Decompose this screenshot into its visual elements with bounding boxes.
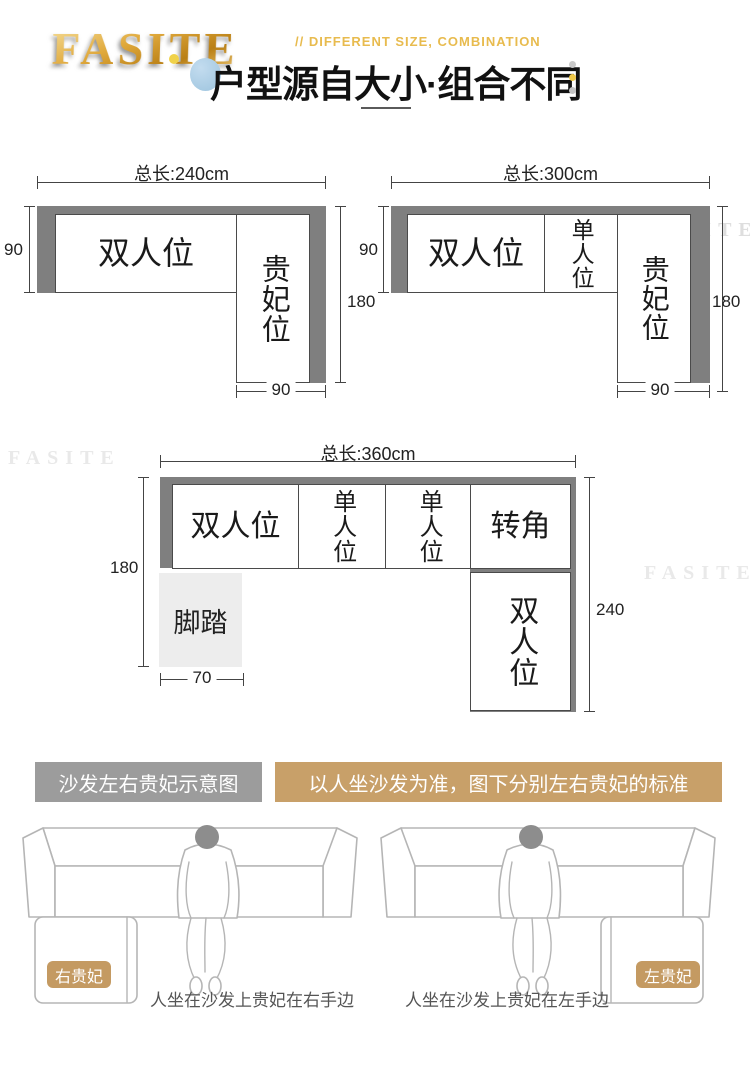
decor-dot-gray-top <box>569 61 576 68</box>
diagram3-seat-corner: 转角 <box>470 484 571 569</box>
diagram2-bottom-dim-value: 90 <box>646 380 675 400</box>
diagram3-seat-double: 双人位 <box>172 484 299 569</box>
diagram1-bottom-dim-value: 90 <box>267 380 296 400</box>
page-title: 户型源自大小·组合不同 <box>210 54 555 108</box>
diagram2-right-dim-value: 180 <box>712 292 740 312</box>
right-chaise-badge: 右贵妃 <box>47 961 111 988</box>
diagram1-seat-double: 双人位 <box>55 214 237 293</box>
decor-yellow-dot <box>169 54 179 64</box>
watermark-fasite: FASITE <box>644 562 750 585</box>
diagram1-left-dimension-line <box>29 206 30 293</box>
diagram2-seat-single: 单人位 <box>544 214 618 293</box>
diagram2-left-dim-value: 90 <box>359 240 378 260</box>
diagram3-right-dim-value: 240 <box>596 600 624 620</box>
legend-title-badge: 沙发左右贵妃示意图 <box>35 762 262 802</box>
diagram3-seat-single-1: 单人位 <box>298 484 386 569</box>
diagram3-footstool: 脚踏 <box>159 573 242 667</box>
diagram2-seat-chaise: 贵妃位 <box>617 214 691 383</box>
diagram3-total-length-label: 总长:360cm <box>160 440 576 466</box>
diagram1-left-dim-value: 90 <box>4 240 23 260</box>
legend-description: 以人坐沙发为准，图下分别左右贵妃的标准 <box>275 762 722 802</box>
watermark-fasite: FASITE <box>8 447 121 470</box>
left-chaise-caption: 人坐在沙发上贵妃在左手边 <box>401 986 613 1011</box>
decor-dot-gold <box>569 74 576 81</box>
diagram1-seat-chaise: 贵妃位 <box>236 214 310 383</box>
person-figure <box>177 825 239 995</box>
diagram2-top-dimension-line <box>391 182 710 183</box>
left-chaise-badge: 左贵妃 <box>636 961 700 988</box>
diagram1-right-dimension-line <box>340 206 341 383</box>
diagram3-bottom-dim-value: 70 <box>188 668 217 688</box>
diagram3-right-dimension-line <box>589 477 590 712</box>
diagram3-seat-double-vertical: 双人位 <box>470 572 571 711</box>
diagram2-seat-double: 双人位 <box>407 214 545 293</box>
diagram2-left-dimension-line <box>383 206 384 293</box>
person-figure <box>499 825 561 995</box>
diagram3-left-dimension-line <box>143 477 144 667</box>
header-subtitle-en: // DIFFERENT SIZE, COMBINATION <box>295 34 541 49</box>
decor-dot-gray-bottom <box>569 87 576 94</box>
diagram3-seat-single-2: 单人位 <box>385 484 472 569</box>
title-underline <box>361 107 411 109</box>
diagram1-right-dim-value: 180 <box>347 292 375 312</box>
right-chaise-caption: 人坐在沙发上贵妃在右手边 <box>146 986 358 1011</box>
product-detail-image: FASITE // DIFFERENT SIZE, COMBINATION 户型… <box>0 0 750 1065</box>
diagram3-left-dim-value: 180 <box>110 558 138 578</box>
diagram1-top-dimension-line <box>37 182 326 183</box>
diagram3-top-dimension-line <box>160 461 576 462</box>
